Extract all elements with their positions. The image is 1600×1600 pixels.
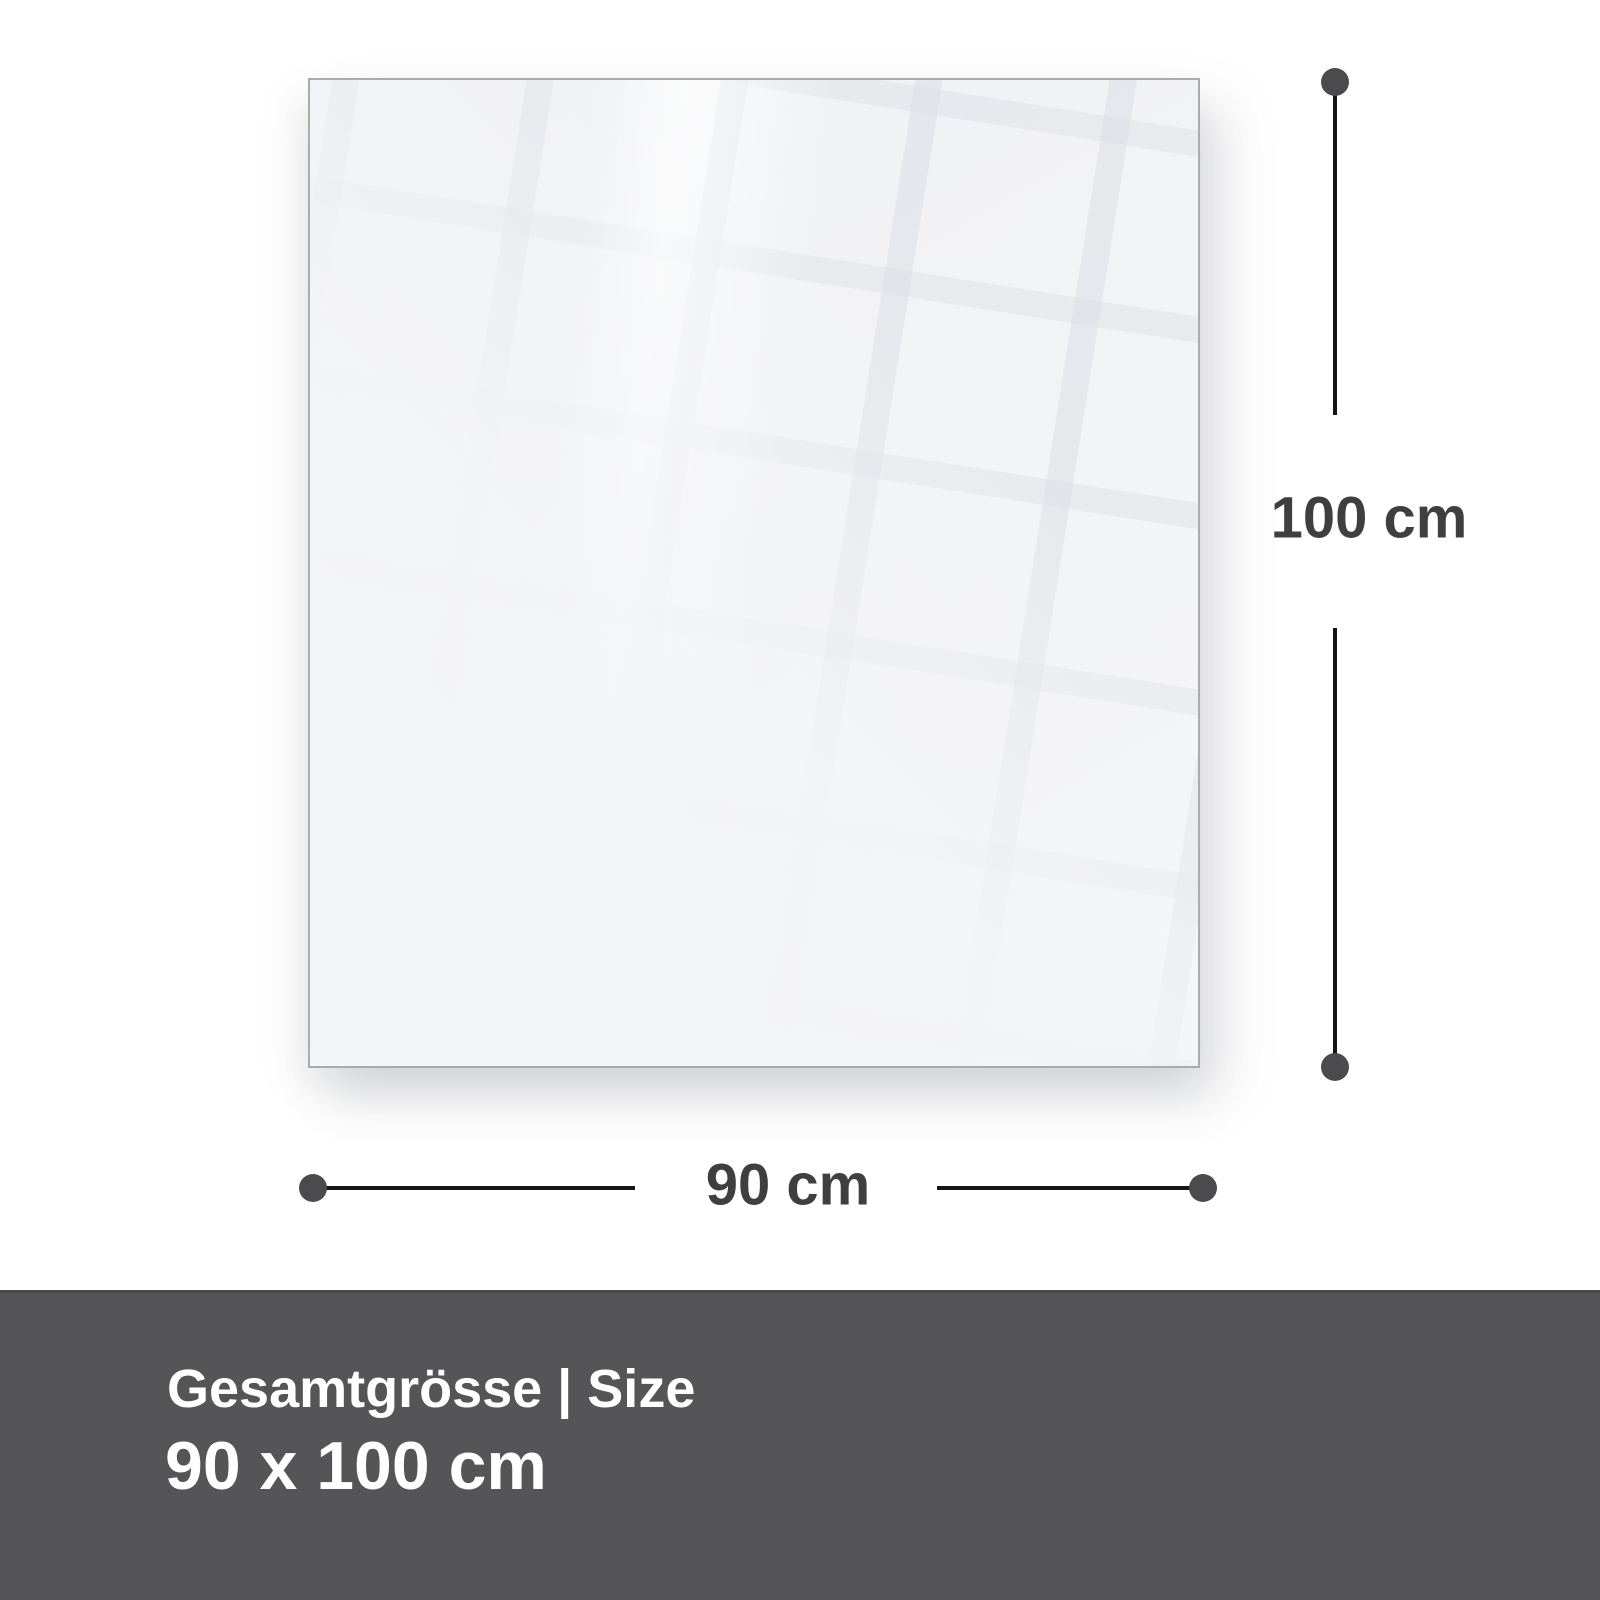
height-dimension-line-upper	[1333, 82, 1337, 415]
size-banner-title: Gesamtgrösse | Size	[167, 1362, 695, 1416]
height-dimension-line-lower	[1333, 628, 1337, 1067]
height-dimension-label: 100 cm	[1271, 485, 1468, 552]
size-banner-value: 90 x 100 cm	[165, 1432, 547, 1500]
dimension-endpoint-dot-bottom	[1321, 1053, 1349, 1081]
product-panel	[308, 78, 1200, 1068]
product-size-diagram: 100 cm 90 cm Gesamtgrösse | Size 90 x 10…	[0, 0, 1600, 1600]
dimension-endpoint-dot-right	[1189, 1174, 1217, 1202]
glass-reflection-fade	[310, 80, 1198, 1066]
size-banner: Gesamtgrösse | Size 90 x 100 cm	[0, 1290, 1600, 1600]
dimension-endpoint-dot-top	[1321, 68, 1349, 96]
width-dimension-line-left	[313, 1186, 635, 1190]
dimension-endpoint-dot-left	[299, 1174, 327, 1202]
width-dimension-label: 90 cm	[706, 1152, 870, 1219]
width-dimension-line-right	[937, 1186, 1203, 1190]
